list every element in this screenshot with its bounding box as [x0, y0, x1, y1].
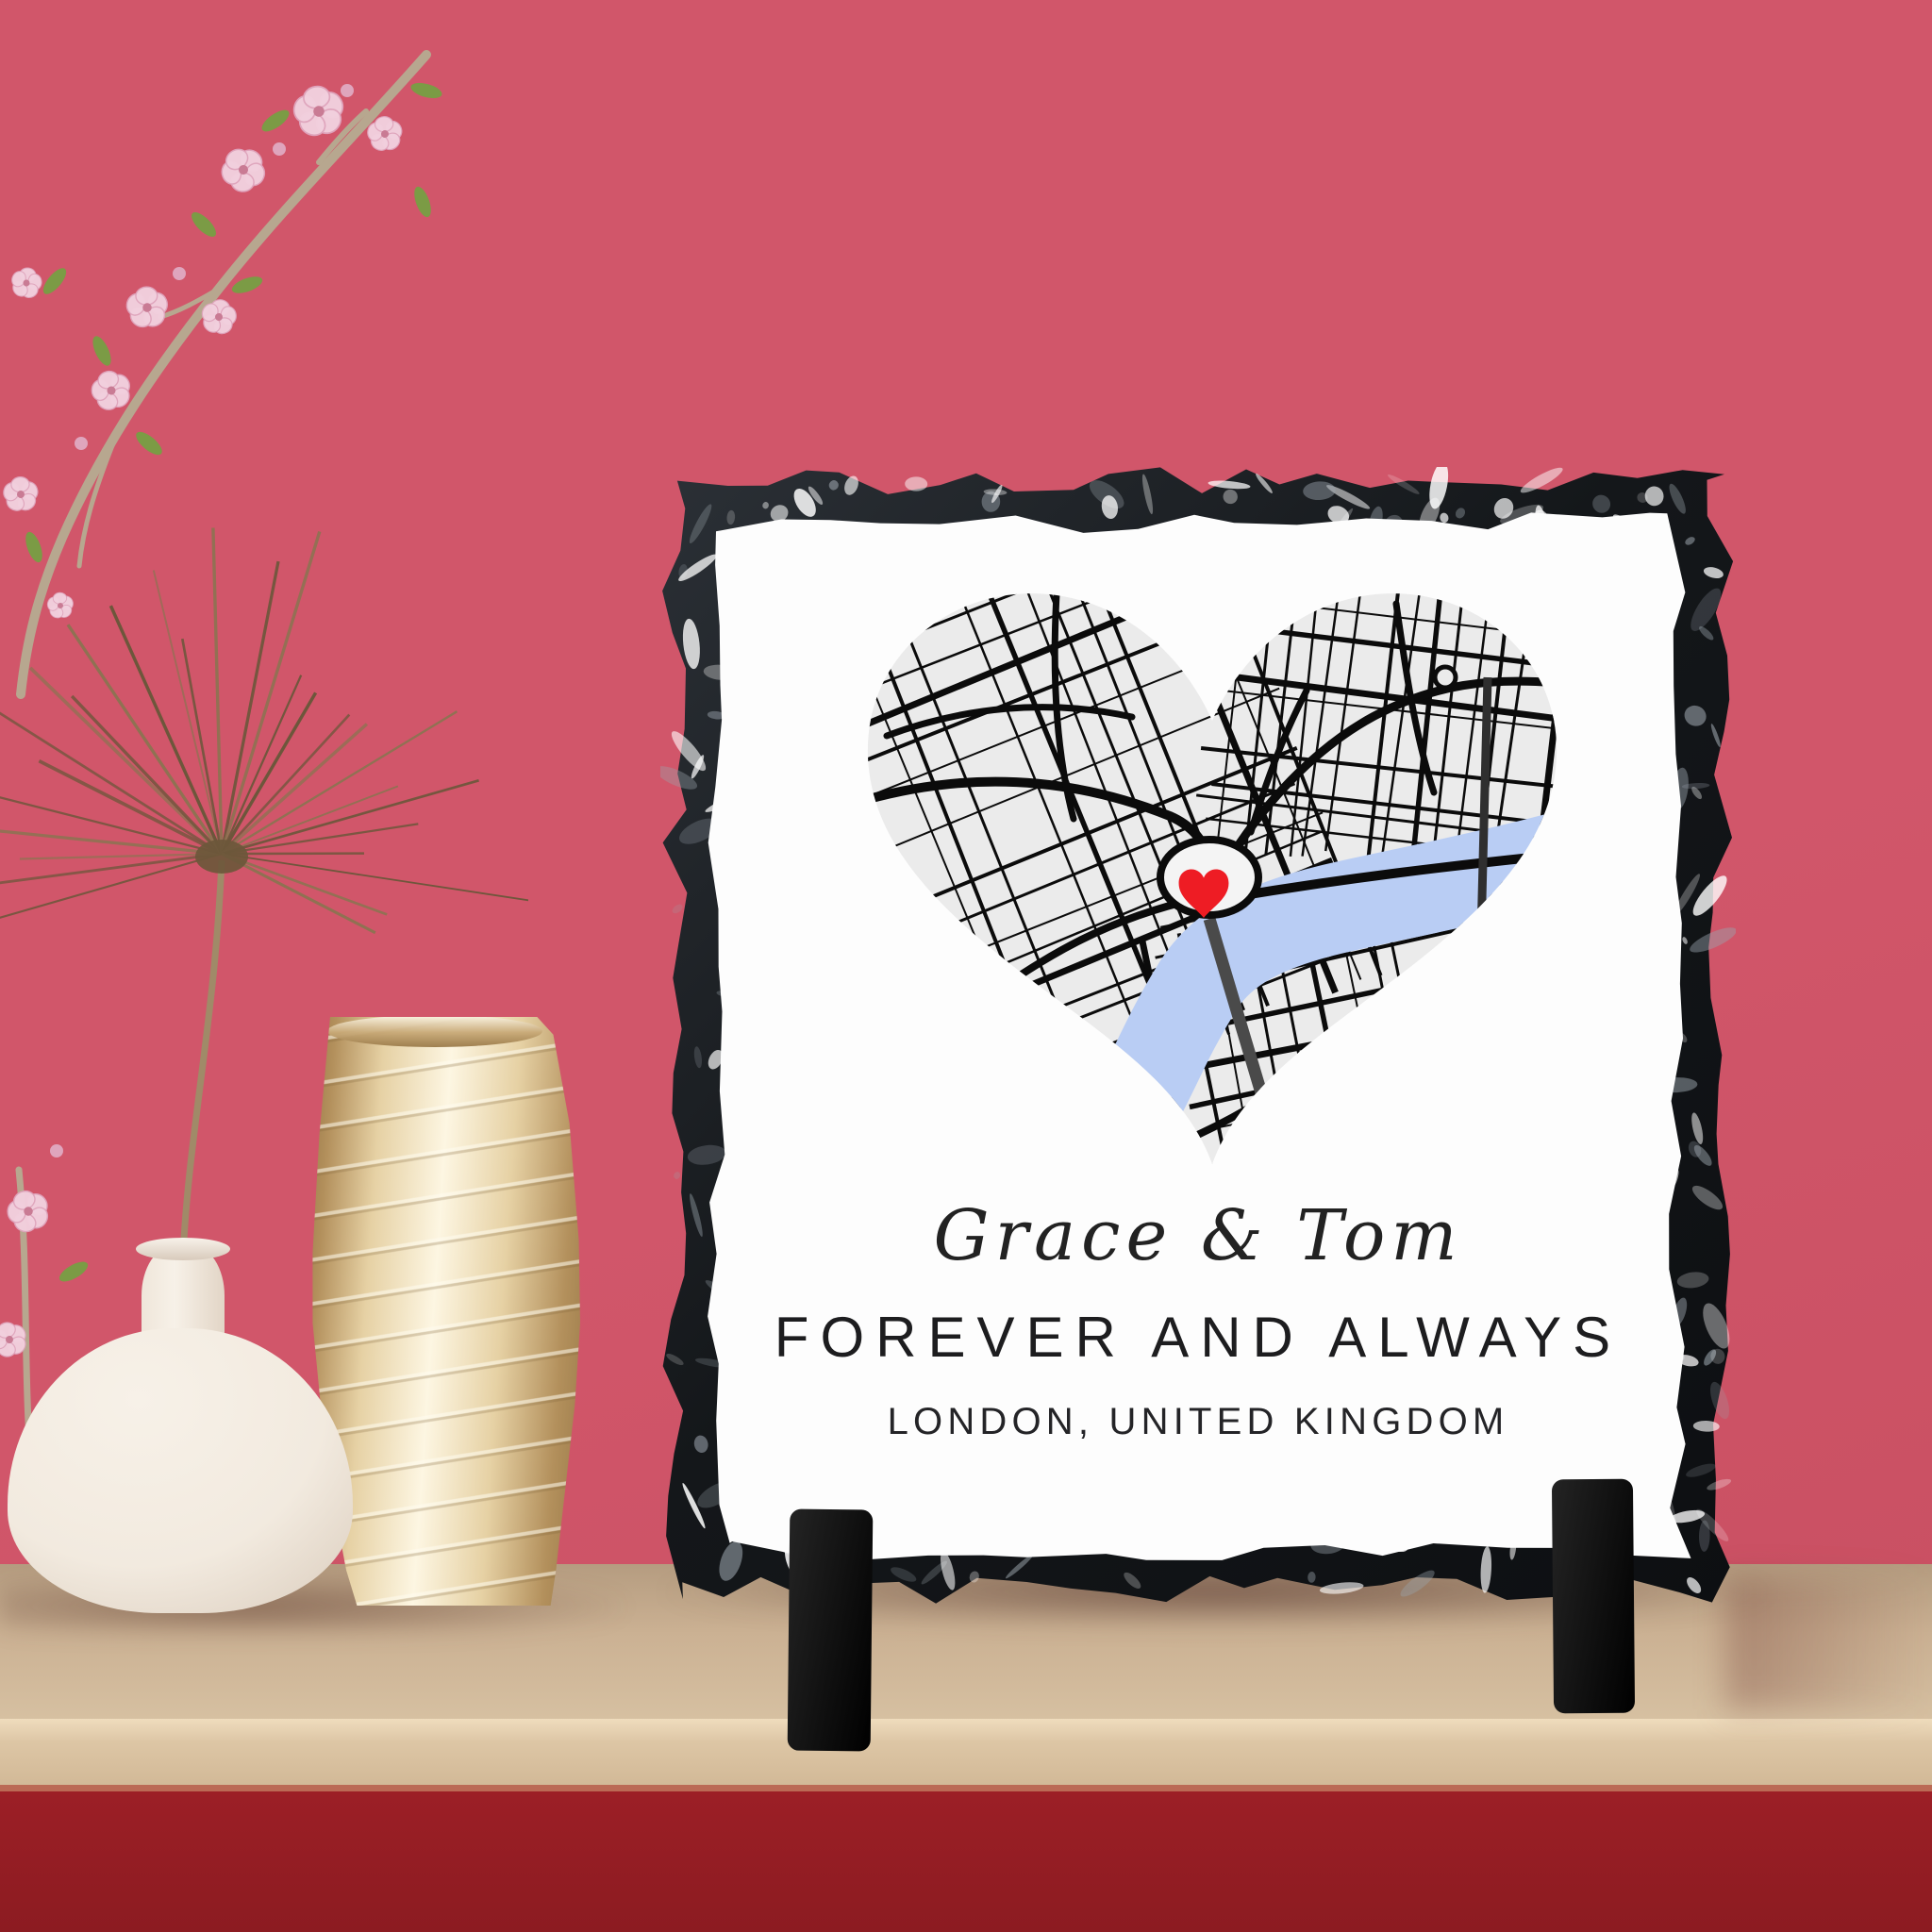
frond-rays [0, 528, 528, 947]
shelf-front-edge [0, 1719, 1932, 1785]
location-text: LONDON, UNITED KINGDOM [660, 1401, 1736, 1443]
gold-vase-rim [327, 1015, 542, 1047]
blossom-bud [341, 84, 354, 97]
leaf [40, 264, 71, 297]
slate-photo-tile: Grace & Tom FOREVER AND ALWAYS LONDON, U… [660, 467, 1736, 1604]
blossom-flower [209, 138, 275, 204]
blossom-flower [118, 278, 175, 337]
leaf [89, 334, 114, 369]
headline-text: FOREVER AND ALWAYS [660, 1305, 1736, 1370]
scene: Grace & Tom FOREVER AND ALWAYS LONDON, U… [0, 0, 1932, 1932]
couple-names: Grace & Tom [660, 1195, 1736, 1276]
frond-stem [183, 860, 222, 1257]
blossom-bud [173, 267, 186, 280]
frond-core [195, 840, 248, 874]
wall-below-shelf [0, 1791, 1932, 1932]
leaf [409, 80, 443, 101]
leaf [132, 428, 165, 459]
blossom-bud [273, 142, 286, 156]
leaf [188, 208, 220, 241]
blossom-bud [75, 437, 88, 450]
blossom-flower [7, 265, 45, 303]
leaf [411, 185, 435, 220]
white-vase-lip [136, 1238, 230, 1260]
tile-stand-right-foot [1552, 1479, 1635, 1714]
tile-stand-left-foot [788, 1509, 874, 1752]
shelf-edge-line [0, 1785, 1932, 1791]
circle-landmark [1435, 667, 1456, 688]
leaf [258, 107, 292, 136]
leaf [230, 274, 265, 297]
